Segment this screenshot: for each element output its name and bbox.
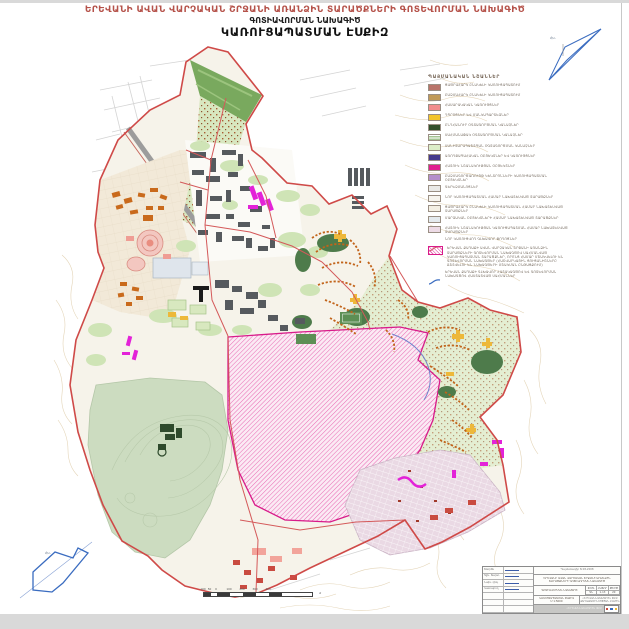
signature-field: [504, 593, 533, 599]
legend-item-label: ՍԱՀՄԱՆԱՓԱԿ ՕԳՏԱԳՈՐԾՄԱՆ ԿԱՆԱՉՆԵՐ: [445, 133, 523, 137]
legend-swatch: [428, 94, 441, 101]
signature-role: Կատարող: [483, 587, 504, 593]
stamp-doc-label: ԳՈՏԻԱՎՈՐՄԱՆ ՆԱԽԱԳԻԾ: [534, 586, 586, 595]
legend-swatch: [428, 174, 441, 181]
legend-item-label: ՀԱՍԱՐԱԿԱԿԱՆ ԿԱՌՈՒՅՑՆԵՐ: [445, 103, 499, 107]
legend-item-label: ՀԱՏՈՒԿ ՆՇԱՆԱԿՈՒԹՅԱՆ ԿԱՌՈՒՑԱՊԱՏՄԱՆ ՀԱՄԱՐ …: [445, 226, 568, 234]
legend-item: ԵՐԵՎԱՆ ՔԱՂԱՔԻ ԳԼԽԱՎՈՐ ՀԱՏԱԿԱԳԾՈՎ ԵՎ ԳՈՏԵ…: [428, 270, 568, 278]
signature-role: [483, 593, 504, 599]
legend-swatch: [428, 195, 441, 202]
legend-swatch: [428, 84, 441, 91]
signature-field: [504, 567, 533, 573]
scale-segment: [230, 593, 243, 596]
signature-role: Նախ. ղեկ.: [483, 580, 504, 586]
north-label-top: Հս.: [550, 36, 556, 40]
scale-segment: [269, 593, 282, 596]
legend-item: ԳԵՐԵԶՄԱՆՈՑՆԵՐ: [428, 185, 568, 193]
signature-field: [504, 606, 533, 612]
signature-role: Տնօրեն: [483, 567, 504, 573]
scale-label: 0: [215, 587, 217, 591]
legend-item-label: ԵՐԵՎԱՆ ՔԱՂԱՔԻ ԳԼԽԱՎՈՐ ՀԱՏԱԿԱԳԾՈՎ ԵՎ ԳՈՏԵ…: [445, 270, 568, 278]
legend-swatch: [428, 134, 441, 141]
contract-line: Պայմանագիր N 08-2008: [534, 567, 620, 575]
legend-item: ԸՆԴՀԱՆՈՒՐ ՕԳՏԱԳՈՐԾՄԱՆ ԿԱՆԱՉՆԵՐ: [428, 123, 568, 131]
scale-bar-graphic: [203, 592, 313, 597]
signature-role: [483, 600, 504, 606]
signature-row: [483, 606, 533, 613]
org-logo: [604, 605, 619, 613]
signature-row: Տնօրեն: [483, 567, 533, 574]
legend-item-label: ԲԱԶՄԱՀԱՐԿ ԲՆԱԿԵԼԻ ԿԱՌՈՒՑԱՊԱՏՈՒՄ: [445, 93, 520, 97]
legend-swatch: [428, 216, 441, 223]
title-block: ՏնօրենԳլխ. ճարտ.Նախ. ղեկ.Կատարող Պայմանա…: [482, 566, 621, 614]
legend-item: ՀԱՏՈՒԿ ՆՇԱՆԱԿՈՒԹՅԱՆ ԿԱՌՈՒՑԱՊԱՏՄԱՆ ՀԱՄԱՐ …: [428, 226, 568, 234]
legend-item: ՄԱՐԶԱԿԱՆ ՕԲՅԵԿՏՆԵՐԻ ՀԱՄԱՐ ՆԱԽԱՏԵՍՎԱԾ ՏԱՐ…: [428, 216, 568, 224]
legend-item: ՑԱԾՐԱՀԱՐԿ ԲՆԱԿԵԼԻ ԿԱՌՈՒՑԱՊԱՏՄԱՆ ՀԱՄԱՐ ՆԱ…: [428, 205, 568, 213]
scale-label: 100: [226, 587, 231, 591]
legend-title: ՊԱՅՄԱՆԱԿԱՆ ՆՇԱՆՆԵՐ: [428, 75, 568, 80]
legend-swatch: [428, 144, 441, 151]
legend-item-label: ԳԵՐԵԶՄԱՆՈՑՆԵՐ: [445, 185, 478, 189]
stamp-sheet-table: ՓՈՒԼ ՀԱՏՈՐ ԹԵՐԹ ԳՆ 1-13 20: [586, 586, 620, 595]
signature-field: [504, 574, 533, 580]
scale-bar-labels: 100500100200300400: [203, 587, 313, 591]
north-arrow-icon: [549, 29, 601, 80]
scale-label: 50: [208, 587, 212, 591]
legend-item: ԲԱԶՄԱԳՈՐԾԱՌՈՒՅԹ ԿԵՆՏՐՈՆՆԵՐԻ ԿԱՌՈՒՑԱՊԱՏՄԱ…: [428, 174, 568, 182]
scale-segment: [217, 593, 230, 596]
legend-swatch: [428, 154, 441, 161]
keymap-outline: [20, 542, 92, 598]
legend-item: ԵՐԵՎԱՆ ՔԱՂԱՔԻ ԱՎԱՆ ՎԱՐՉԱԿԱՆ ՇՐՋԱՆԻ ԱՌԱՆՁ…: [428, 246, 568, 267]
legend: ՊԱՅՄԱՆԱԿԱՆ ՆՇԱՆՆԵՐ ՑԱԾՐԱՀԱՐԿ ԲՆԱԿԵԼԻ ԿԱՌ…: [428, 75, 568, 281]
legend-swatch: [428, 124, 441, 131]
legend-item-label: ՆՈՐ ԿԱՌՈՒՑՎՈՂ ԳԼԽԱՎՈՐ ՓՈՂՈՑՆԵՐ: [445, 237, 517, 241]
legend-item: ՀԱՏՈՒԿ ՆՇԱՆԱԿՈՒԹՅԱՆ ՕԲՅԵԿՏՆԵՐ: [428, 164, 568, 172]
scale-label: 100: [200, 587, 205, 591]
signature-column: ՏնօրենԳլխ. ճարտ.Նախ. ղեկ.Կատարող: [483, 567, 534, 613]
legend-item-label: ԴՊՐՈՑՆԵՐ ԵՎ ՄԱՆԿԱՊԱՐՏԵԶՆԵՐ: [445, 113, 509, 117]
stamp-project-title: ԵՐԵՎԱՆԻ ԱՎԱՆ ՎԱՐՉԱԿԱՆ ՇՐՋԱՆԻ ԱՌԱՆՁԻՆ ՏԱՐ…: [534, 575, 620, 586]
legend-item-label: ՑԱԾՐԱՀԱՐԿ ԲՆԱԿԵԼԻ ԿԱՌՈՒՑԱՊԱՏՈՒՄ: [445, 83, 520, 87]
stamp-band: «ԵՐԵՎԱՆՆԱԽԱԳԻԾ» ՓԲԸ: [534, 605, 620, 613]
legend-item-label: ԲԱԶՄԱԳՈՐԾԱՌՈՒՅԹ ԿԵՆՏՐՈՆՆԵՐԻ ԿԱՌՈՒՑԱՊԱՏՄԱ…: [445, 174, 568, 182]
legend-swatch: [428, 114, 441, 121]
scale-label: 300: [252, 587, 257, 591]
legend-item-label: ՑԱԾՐԱՀԱՐԿ ԲՆԱԿԵԼԻ ԿԱՌՈՒՑԱՊԱՏՄԱՆ ՀԱՄԱՐ ՆԱ…: [445, 205, 568, 213]
legend-item-label: ԸՆԴՀԱՆՈՒՐ ՕԳՏԱԳՈՐԾՄԱՆ ԿԱՆԱՉՆԵՐ: [445, 123, 519, 127]
legend-item-label: ՆՈՐ ԿԱՌՈՒՑԱՊԱՏՄԱՆ ՀԱՄԱՐ ՆԱԽԱՏԵՍՎԱԾ ՏԱՐԱԾ…: [445, 195, 553, 199]
legend-item-label: ՀԱՏՈՒԿ ՆՇԱՆԱԿՈՒԹՅԱՆ ՕԲՅԵԿՏՆԵՐ: [445, 164, 515, 168]
legend-swatch: [428, 205, 441, 212]
signature-field: [504, 587, 533, 593]
signature-field: [504, 580, 533, 586]
stamp-organization: «ԵՐԵՎԱՆՆԱԽԱԳԻԾ» ՓԲԸ ՔԱՂԱՔԱՇԻՆՈՒԹՅԱՆ ԲԱԺԻ…: [580, 596, 620, 604]
legend-item: ԴՊՐՈՑՆԵՐ ԵՎ ՄԱՆԿԱՊԱՐՏԵԶՆԵՐ: [428, 113, 568, 121]
legend-item-label: ՄԱՐԶԱԿԱՆ ՕԲՅԵԿՏՆԵՐԻ ՀԱՄԱՐ ՆԱԽԱՏԵՍՎԱԾ ՏԱՐ…: [445, 216, 559, 220]
legend-item: ՑԱԾՐԱՀԱՐԿ ԲՆԱԿԵԼԻ ԿԱՌՈՒՑԱՊԱՏՈՒՄ: [428, 83, 568, 91]
north-label-bottom: Հս.: [45, 551, 51, 555]
legend-item: ՆՈՐ ԿԱՌՈՒՑՎՈՂ ԳԼԽԱՎՈՐ ՓՈՂՈՑՆԵՐ: [428, 237, 568, 244]
legend-swatch: [428, 185, 441, 192]
legend-swatch: [428, 104, 441, 111]
scale-label: 400: [265, 587, 270, 591]
legend-symbol-hatch: [428, 246, 443, 255]
legend-rows: ՑԱԾՐԱՀԱՐԿ ԲՆԱԿԵԼԻ ԿԱՌՈՒՑԱՊԱՏՈՒՄԲԱԶՄԱՀԱՐԿ…: [428, 83, 568, 278]
scale-bar: 100500100200300400 մ: [203, 587, 313, 599]
scale-label: 200: [239, 587, 244, 591]
legend-item: ԲԱԶՄԱՀԱՐԿ ԲՆԱԿԵԼԻ ԿԱՌՈՒՑԱՊԱՏՈՒՄ: [428, 93, 568, 101]
legend-item: ՀԱՍԱՐԱԿԱԿԱՆ ԿԱՌՈՒՅՑՆԵՐ: [428, 103, 568, 111]
signature-row: Նախ. ղեկ.: [483, 580, 533, 587]
signature-role: Գլխ. ճարտ.: [483, 574, 504, 580]
signature-role: [483, 606, 504, 612]
signature-row: Գլխ. ճարտ.: [483, 574, 533, 581]
legend-item-label: ԵՐԵՎԱՆ ՔԱՂԱՔԻ ԱՎԱՆ ՎԱՐՉԱԿԱՆ ՇՐՋԱՆԻ ԱՌԱՆՁ…: [447, 246, 568, 267]
signature-row: [483, 600, 533, 607]
legend-symbol-line-red: [428, 237, 441, 244]
legend-swatch: [428, 164, 441, 171]
legend-item-label: ԱՌՈՂՋԱՊԱՀԱԿԱՆ ՕԲՅԵԿՏՆԵՐ ԵՎ ԿԱՌՈՒՅՑՆԵՐ: [445, 154, 535, 158]
stamp-sheet-name: ԿԱՌՈՒՑԱՊԱՏՄԱՆ ԷՍՔԻԶ Մ 1:5000: [534, 596, 580, 604]
legend-item: ՍԱՆԻՏԱՐԱՊԱՇՏՊԱՆ ՕԳՏԱԳՈՐԾՄԱՆ ԿԱՆԱՉՆԵՐ: [428, 144, 568, 152]
signature-field: [504, 600, 533, 606]
legend-item: ՆՈՐ ԿԱՌՈՒՑԱՊԱՏՄԱՆ ՀԱՄԱՐ ՆԱԽԱՏԵՍՎԱԾ ՏԱՐԱԾ…: [428, 195, 568, 203]
scale-bar-unit: մ: [319, 591, 321, 595]
signature-row: [483, 593, 533, 600]
scale-segment: [256, 593, 269, 596]
scale-segment: [243, 593, 256, 596]
legend-item: ՍԱՀՄԱՆԱՓԱԿ ՕԳՏԱԳՈՐԾՄԱՆ ԿԱՆԱՉՆԵՐ: [428, 133, 568, 141]
legend-item: ԱՌՈՂՋԱՊԱՀԱԿԱՆ ՕԲՅԵԿՏՆԵՐ ԵՎ ԿԱՌՈՒՅՑՆԵՐ: [428, 154, 568, 162]
signature-row: Կատարող: [483, 587, 533, 594]
legend-item-label: ՍԱՆԻՏԱՐԱՊԱՇՏՊԱՆ ՕԳՏԱԳՈՐԾՄԱՆ ԿԱՆԱՉՆԵՐ: [445, 144, 535, 148]
legend-symbol-line-blue: [428, 270, 441, 277]
legend-swatch: [428, 226, 441, 233]
